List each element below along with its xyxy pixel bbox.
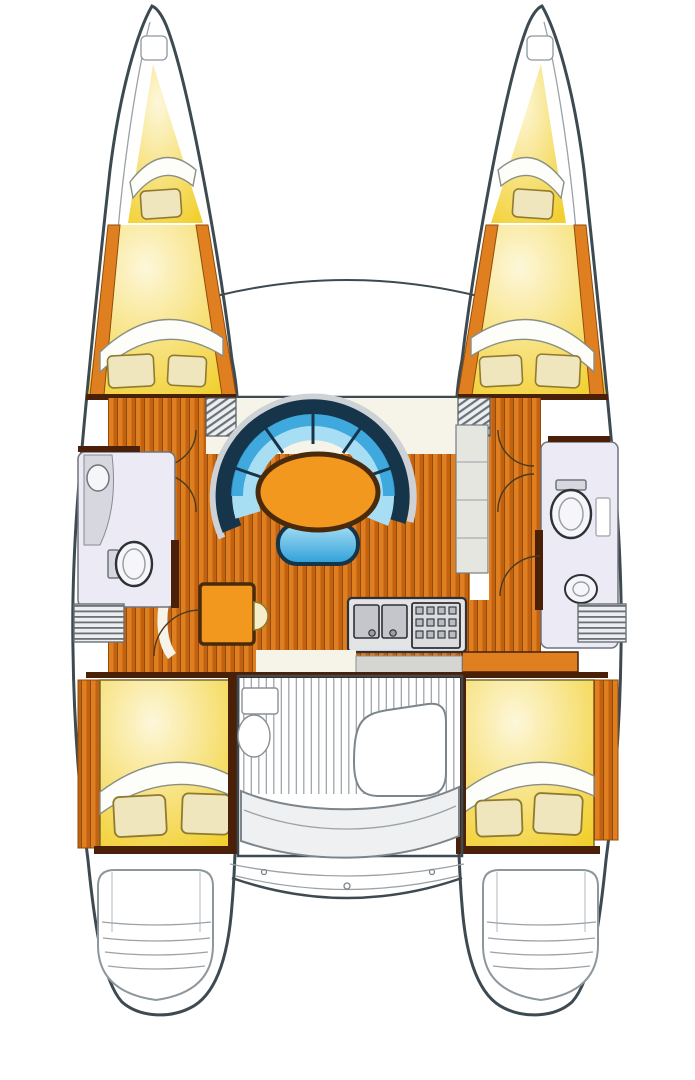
left-hull-steps	[74, 604, 124, 642]
right-aft-wall-bottom	[458, 846, 600, 854]
nav-desk	[200, 584, 254, 644]
right-fwd-pillow-2	[535, 354, 581, 388]
left-anchor-locker	[141, 36, 167, 60]
galley-faucet-left	[369, 630, 375, 636]
left-forepeak-pillow	[140, 189, 182, 220]
right-anchor-locker	[527, 36, 553, 60]
left-fwd-pillow-2	[167, 355, 207, 387]
left-aft-cabin	[78, 678, 238, 854]
right-head-shelf	[596, 498, 610, 536]
right-transom	[483, 870, 598, 1000]
forward-crossbeam	[216, 280, 478, 296]
left-aft-pillow-2	[181, 793, 230, 835]
left-aft-pillow-1	[113, 795, 167, 838]
left-aft-wall-inner	[228, 678, 238, 854]
right-cabinet-column	[456, 425, 488, 573]
left-aft-wardrobe	[78, 680, 100, 848]
left-head-sink	[87, 465, 109, 491]
aft-crossbar	[232, 878, 462, 898]
cockpit-side-locker	[242, 688, 278, 714]
right-fwd-pillow-1	[479, 355, 523, 387]
left-aft-wall-bottom	[94, 846, 236, 854]
cockpit-top-gray-strip	[356, 656, 462, 674]
right-head-wall-top	[548, 436, 610, 442]
galley-faucet-right	[390, 630, 396, 636]
left-transom	[98, 870, 213, 1000]
right-head-toilet	[551, 490, 591, 538]
floorplan-canvas	[0, 0, 695, 1080]
right-head-wall-left	[535, 530, 543, 610]
right-hull-steps	[578, 604, 626, 642]
galley-counter-band	[256, 650, 356, 674]
cockpit	[238, 676, 462, 858]
right-hull-corridor-floor	[489, 398, 541, 676]
cockpit-table	[354, 704, 446, 796]
cockpit-helm-seat	[238, 715, 270, 757]
right-forepeak-pillow	[512, 189, 554, 220]
right-galley-cabinets	[462, 652, 578, 672]
right-aft-cabin	[456, 678, 618, 854]
right-aft-pillow-1	[475, 799, 522, 837]
left-head-wall-right	[171, 540, 179, 608]
left-fwd-pillow-1	[107, 354, 155, 388]
left-companionway-steps	[206, 398, 236, 436]
left-head-wall-top	[78, 446, 140, 452]
salon-table	[258, 454, 378, 530]
stern	[98, 864, 598, 1000]
right-aft-pillow-2	[533, 793, 583, 835]
aft-fitting-center	[344, 883, 350, 889]
right-aft-wardrobe	[594, 680, 618, 840]
right-head-sink	[565, 575, 597, 603]
right-head-cistern	[556, 480, 586, 490]
catamaran-floorplan	[0, 0, 695, 1080]
cockpit-bench	[241, 787, 459, 858]
